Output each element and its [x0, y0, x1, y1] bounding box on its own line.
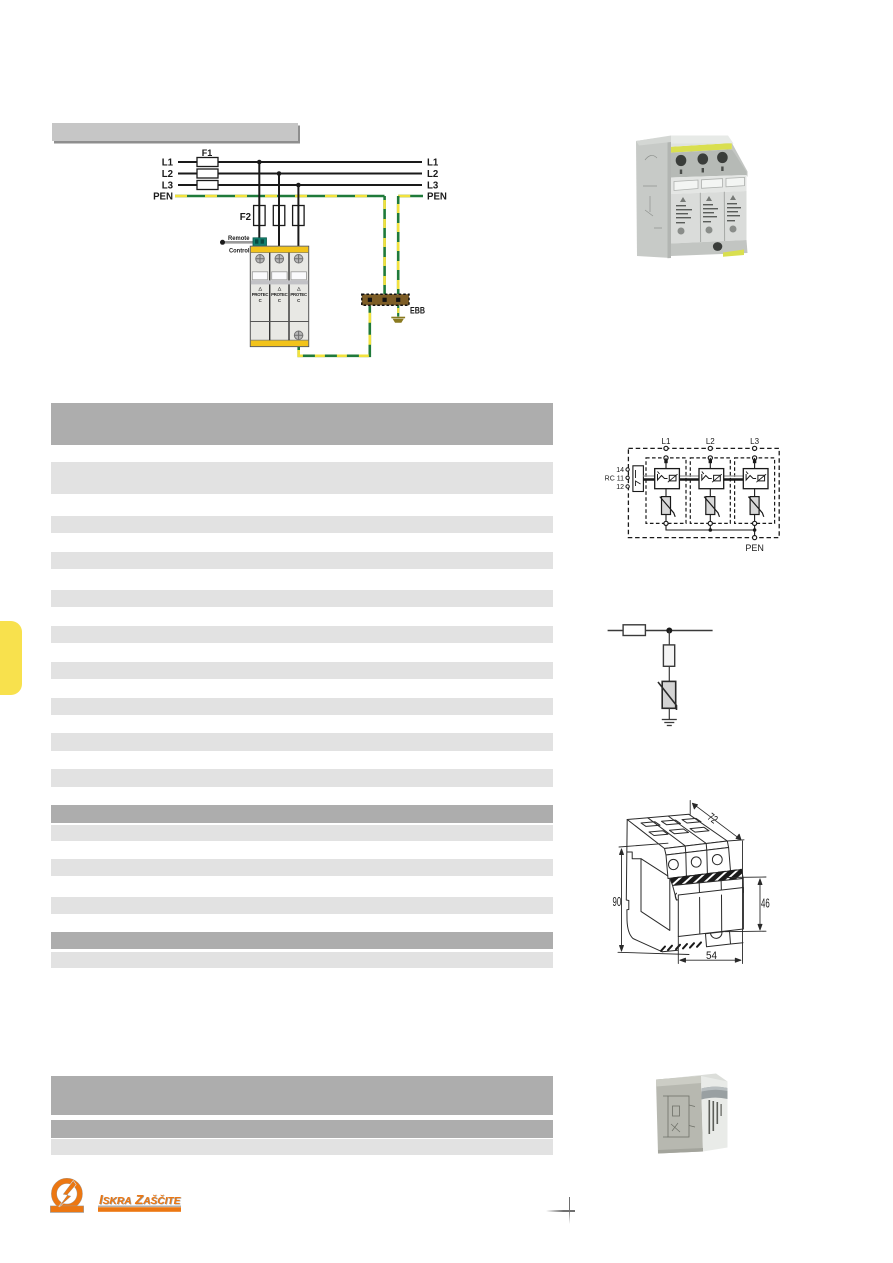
svg-text:Control: Control: [229, 248, 250, 255]
svg-text:L1: L1: [162, 158, 174, 169]
svg-text:PROTEC: PROTEC: [290, 292, 307, 297]
svg-text:L3: L3: [750, 437, 759, 446]
svg-text:L1: L1: [427, 158, 439, 169]
svg-text:L2: L2: [162, 169, 173, 180]
svg-text:EBB: EBB: [410, 306, 425, 317]
svg-text:PEN: PEN: [427, 192, 447, 203]
svg-text:14: 14: [616, 467, 624, 474]
svg-text:L1: L1: [662, 437, 671, 446]
svg-text:PEN: PEN: [745, 543, 764, 553]
svg-text:PEN: PEN: [153, 192, 173, 203]
svg-text:ISKRA ZAŠČITE: ISKRA ZAŠČITE: [99, 1192, 182, 1207]
svg-text:L3: L3: [162, 181, 174, 192]
svg-text:F1: F1: [202, 148, 213, 158]
svg-text:PROTEC: PROTEC: [271, 292, 288, 297]
svg-text:54: 54: [706, 950, 717, 962]
svg-text:PROTEC: PROTEC: [252, 292, 269, 297]
svg-text:90: 90: [613, 895, 622, 909]
svg-text:C: C: [259, 298, 262, 303]
svg-text:L3: L3: [427, 181, 439, 192]
svg-text:12: 12: [616, 484, 624, 491]
svg-text:C: C: [297, 298, 300, 303]
svg-text:RC 11: RC 11: [605, 475, 624, 482]
svg-text:F2: F2: [240, 212, 251, 223]
svg-text:72: 72: [705, 811, 719, 826]
svg-text:46: 46: [761, 897, 770, 911]
svg-text:L2: L2: [706, 437, 715, 446]
svg-text:L2: L2: [427, 169, 438, 180]
svg-text:Remote: Remote: [228, 235, 250, 242]
svg-text:C: C: [278, 298, 281, 303]
